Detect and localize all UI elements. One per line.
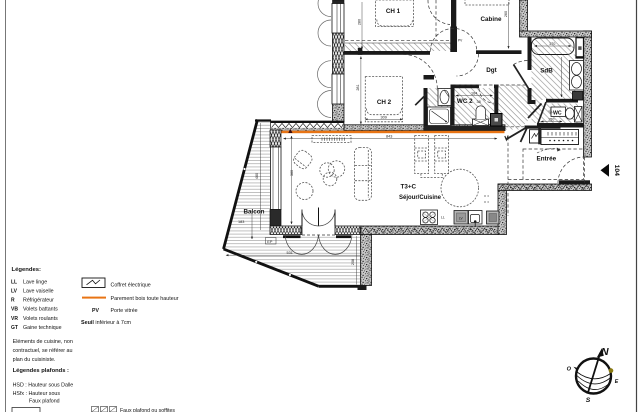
svg-text:R: R xyxy=(11,298,15,304)
svg-text:183: 183 xyxy=(238,220,244,224)
svg-text:Volets battants: Volets battants xyxy=(23,307,58,313)
svg-text:HSD : Hauteur sous Dalle: HSD : Hauteur sous Dalle xyxy=(13,383,74,389)
svg-text:VR: VR xyxy=(11,316,18,322)
svg-text:104: 104 xyxy=(613,165,620,177)
svg-text:Légendes plafonds :: Légendes plafonds : xyxy=(13,368,69,374)
svg-text:WC: WC xyxy=(553,110,562,116)
svg-text:170: 170 xyxy=(549,42,555,46)
svg-text:Dgt: Dgt xyxy=(486,67,497,74)
svg-text:VB: VB xyxy=(11,307,18,313)
svg-text:Faux plafond: Faux plafond xyxy=(29,398,60,404)
svg-text:PV: PV xyxy=(458,39,463,43)
svg-text:plan du cuisiniste.: plan du cuisiniste. xyxy=(13,357,56,363)
svg-text:Lave linge: Lave linge xyxy=(23,279,47,285)
svg-text:280: 280 xyxy=(357,19,361,25)
svg-text:164: 164 xyxy=(471,91,477,95)
svg-text:Faux plafond ou soffites: Faux plafond ou soffites xyxy=(120,408,175,412)
svg-text:309: 309 xyxy=(381,116,387,120)
svg-text:260: 260 xyxy=(504,11,508,17)
svg-text:GT: GT xyxy=(11,325,18,331)
svg-text:Volets roulants: Volets roulants xyxy=(23,316,58,322)
svg-text:CH 2: CH 2 xyxy=(377,99,392,106)
svg-text:S: S xyxy=(586,397,591,404)
svg-text:208: 208 xyxy=(351,259,355,265)
svg-text:EP: EP xyxy=(267,240,273,244)
svg-text:38: 38 xyxy=(477,100,481,104)
svg-text:LL: LL xyxy=(441,216,445,220)
svg-text:HSfx : Hauteur sous: HSfx : Hauteur sous xyxy=(13,391,61,397)
svg-text:Porte vitrée: Porte vitrée xyxy=(111,308,138,314)
svg-text:460: 460 xyxy=(255,173,259,179)
svg-text:150: 150 xyxy=(548,117,554,121)
svg-text:Séjour/Cuisine: Séjour/Cuisine xyxy=(399,195,442,201)
svg-text:Légendes:: Légendes: xyxy=(12,267,41,273)
svg-text:CH 1: CH 1 xyxy=(386,8,401,15)
svg-text:843: 843 xyxy=(386,134,392,138)
svg-text:360: 360 xyxy=(290,170,294,176)
svg-text:281: 281 xyxy=(356,84,360,90)
svg-text:N: N xyxy=(601,346,609,358)
svg-text:E: E xyxy=(615,379,619,385)
svg-text:Parement bois toute hauteur: Parement bois toute hauteur xyxy=(111,296,179,302)
svg-text:Eléments de cuisine, non: Eléments de cuisine, non xyxy=(13,339,73,345)
svg-text:LL: LL xyxy=(11,279,17,285)
svg-text:SdB: SdB xyxy=(540,68,553,75)
svg-text:Seuil inférieur à 7cm: Seuil inférieur à 7cm xyxy=(81,320,132,326)
svg-text:contractuel, se référer au: contractuel, se référer au xyxy=(13,348,73,354)
svg-text:PV: PV xyxy=(92,308,99,314)
svg-text:Réfrigérateur: Réfrigérateur xyxy=(23,298,54,304)
svg-text:Coffret électrique: Coffret électrique xyxy=(111,283,151,289)
svg-text:T3+C: T3+C xyxy=(401,183,417,190)
svg-text:Entrée: Entrée xyxy=(537,155,557,162)
svg-text:Lave vaiselle: Lave vaiselle xyxy=(23,288,54,294)
svg-text:531: 531 xyxy=(287,251,293,255)
svg-text:Cabine: Cabine xyxy=(481,16,502,23)
svg-text:Gaine technique: Gaine technique xyxy=(23,325,62,331)
svg-text:WC 2: WC 2 xyxy=(457,98,473,105)
svg-text:O: O xyxy=(567,367,572,373)
svg-text:Balcon: Balcon xyxy=(244,208,265,215)
svg-text:LV: LV xyxy=(11,288,18,294)
